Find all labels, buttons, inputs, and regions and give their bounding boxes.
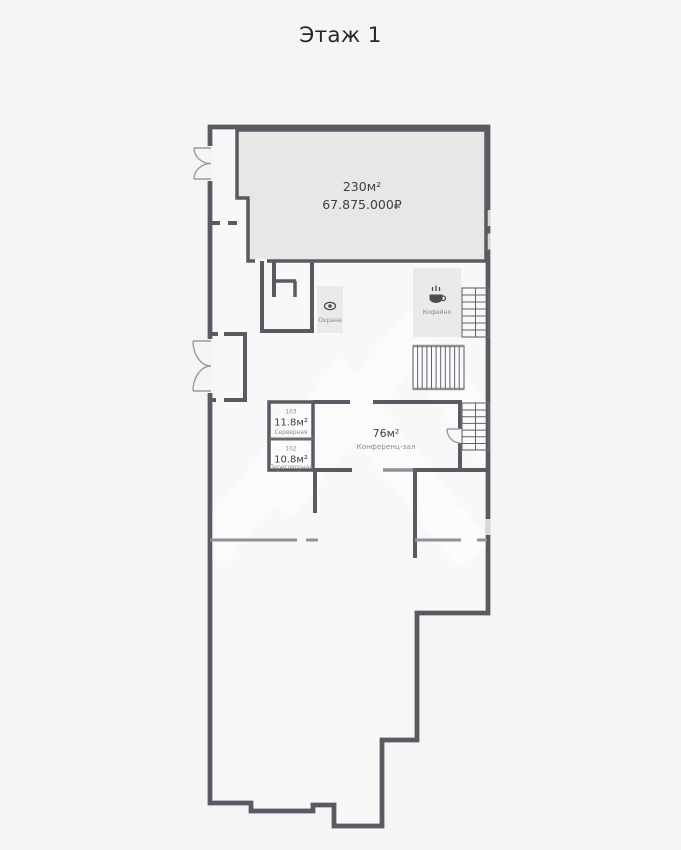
room-meeting-number: 102: [285, 447, 296, 453]
floor-plan: Этаж 1 230м² 67.875.000₽: [0, 0, 681, 850]
highlight-room-price: 67.875.000₽: [322, 197, 402, 212]
page-title: Этаж 1: [299, 23, 381, 48]
security-zone-label: Охрана: [318, 317, 342, 324]
room-server-number: 103: [285, 410, 296, 416]
coffee-zone: Кофейня: [413, 268, 461, 337]
highlighted-room[interactable]: 230м² 67.875.000₽: [237, 130, 486, 264]
conference-name: Конференц-зал: [357, 442, 416, 451]
highlight-room-area: 230м²: [343, 179, 381, 194]
room-server-area: 11.8м²: [274, 418, 308, 429]
room-meeting-name: Переговорная: [269, 465, 312, 471]
room-server-name: Серверная: [275, 430, 308, 436]
conference-area: 76м²: [373, 427, 400, 440]
security-zone: Охрана: [317, 286, 343, 333]
coffee-zone-label: Кофейня: [423, 309, 452, 316]
